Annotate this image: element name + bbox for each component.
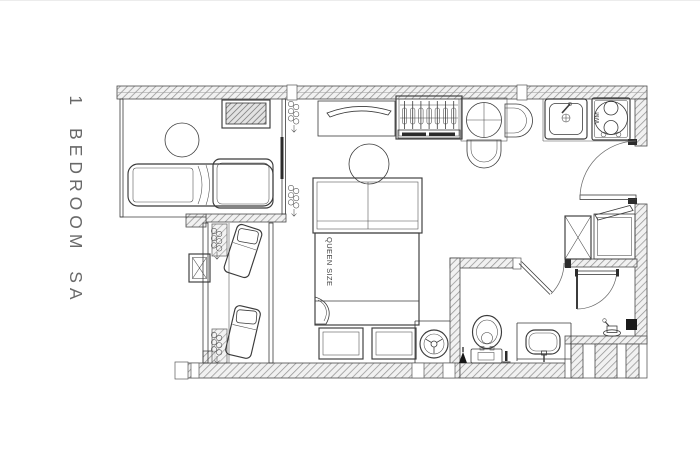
floorplan-canvas: 1 BEDROOM SA bbox=[0, 0, 700, 469]
air-conditioner bbox=[189, 254, 210, 282]
bed-size-label: QUEEN SIZE bbox=[325, 237, 334, 286]
shower-door bbox=[577, 269, 617, 309]
towel-rail bbox=[575, 269, 619, 277]
dining-table bbox=[467, 103, 502, 138]
sliding-partition bbox=[281, 99, 286, 214]
shower-mixer bbox=[603, 319, 621, 336]
coffee-table bbox=[165, 123, 199, 157]
sofa bbox=[128, 159, 273, 208]
walls bbox=[117, 85, 647, 379]
vanity-basin bbox=[517, 323, 571, 363]
foot-bench bbox=[372, 328, 416, 359]
entry-door bbox=[580, 141, 636, 200]
dining-chair bbox=[467, 140, 501, 168]
floor-drain bbox=[626, 319, 637, 330]
kitchen-sink bbox=[545, 99, 587, 139]
cooktop-label: WM bbox=[594, 112, 601, 124]
headboard-shelf bbox=[318, 101, 395, 136]
queen-bed: QUEEN SIZE bbox=[313, 178, 422, 325]
balcony bbox=[189, 223, 273, 363]
floorplan-drawing: QUEEN SIZE bbox=[0, 1, 700, 469]
bedroom: QUEEN SIZE bbox=[313, 101, 450, 363]
cooktop: WM bbox=[592, 98, 630, 140]
lounge-chair bbox=[225, 305, 262, 360]
bathroom-door bbox=[519, 262, 564, 295]
living-room bbox=[120, 99, 299, 217]
kitchen-cabinet bbox=[594, 206, 635, 260]
wardrobe bbox=[396, 96, 462, 139]
dining-chair bbox=[505, 104, 532, 137]
washing-machine bbox=[415, 321, 450, 363]
foot-bench bbox=[319, 328, 363, 359]
toilet bbox=[471, 316, 502, 364]
kitchen: WM bbox=[396, 96, 636, 259]
tv-console bbox=[222, 100, 270, 128]
refrigerator bbox=[565, 216, 591, 259]
